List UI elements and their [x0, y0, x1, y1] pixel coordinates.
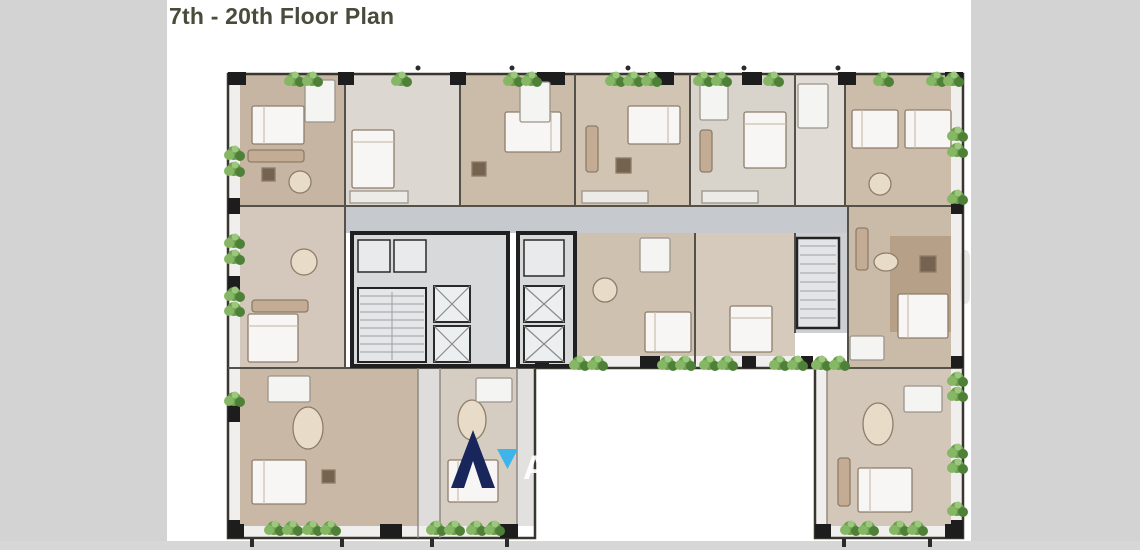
watermark-brand-text: AccomAsia — [523, 449, 709, 487]
floor-plan-image[interactable]: AccomAsia — [0, 0, 1140, 550]
listing-floorplan-page: 7th - 20th Floor Plan — [0, 0, 1140, 550]
